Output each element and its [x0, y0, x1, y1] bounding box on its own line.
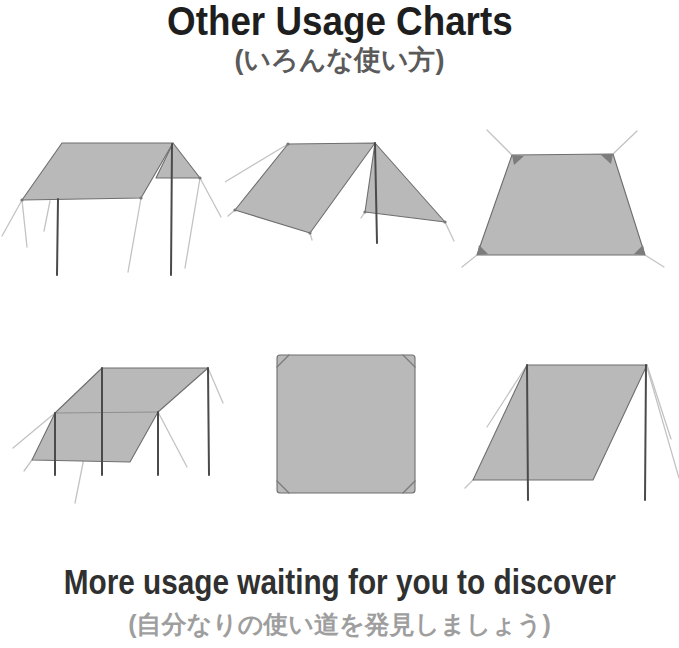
tarp-a-frame-shelter-diagram — [225, 135, 455, 300]
footer-title-text: More usage waiting for you to discover — [63, 559, 615, 605]
tarp — [277, 355, 415, 493]
page-title-text: Other Usage Charts — [167, 0, 513, 44]
tarp-flat-canopy-two-poles-diagram — [0, 135, 230, 300]
awning-diagram-svg — [0, 330, 240, 520]
tarp — [473, 365, 647, 480]
tarp-lean-to-windbreak-diagram — [450, 330, 679, 520]
a-frame-diagram-svg — [225, 135, 455, 300]
page-title: Other Usage Charts — [0, 0, 679, 44]
windbreak-diagram-svg — [450, 330, 679, 520]
ground-sheet-diagram-svg — [450, 120, 679, 280]
tarp-ground-sheet-diagram — [450, 120, 679, 280]
tarp — [477, 154, 645, 255]
tarp — [20, 143, 201, 202]
page-subtitle-japanese: (いろんな使い方) — [0, 42, 679, 78]
footer-title: More usage waiting for you to discover — [0, 559, 679, 605]
canopy-diagram-svg — [0, 135, 230, 300]
tarp-flat-square-top-view-diagram — [240, 330, 460, 520]
square-diagram-svg — [240, 330, 460, 520]
tarp — [32, 368, 208, 462]
tarp-slanted-awning-four-poles-diagram — [0, 330, 240, 520]
tarp — [233, 142, 446, 234]
tarp-usage-infographic: Other Usage Charts (いろんな使い方) — [0, 0, 679, 648]
footer-subtitle-japanese: (自分なりの使い道を発見しましょう) — [0, 606, 679, 642]
